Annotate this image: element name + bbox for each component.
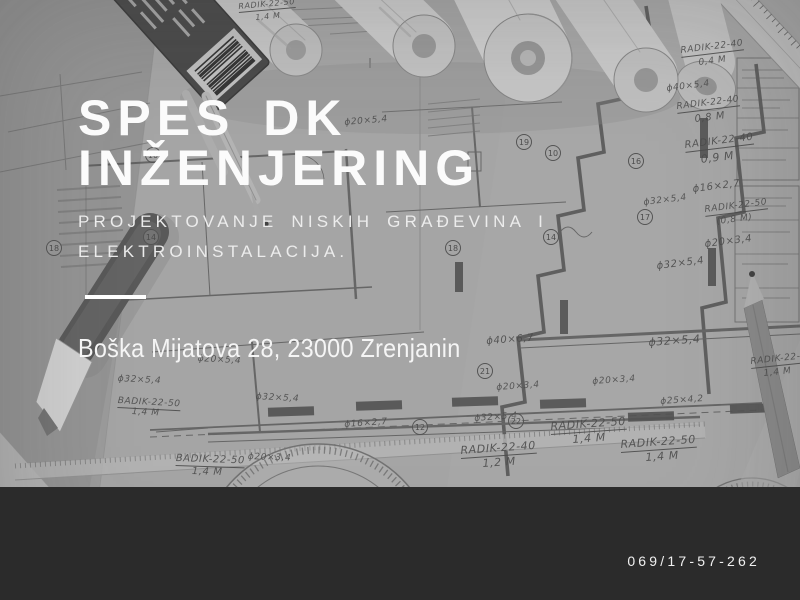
phone-number: 069/17-57-262 <box>627 553 760 569</box>
divider-line <box>85 295 146 299</box>
tagline-line2: ELEKTROINSTALACIJA. <box>78 237 547 267</box>
banner: RADIK-22-501,4 MRADIK-22-400,4 Mϕ40×5,4R… <box>0 0 800 600</box>
company-name-line1: SPES DK <box>78 93 480 143</box>
company-name-line2: INŽENJERING <box>78 143 480 193</box>
company-tagline: PROJEKTOVANJE NISKIH GRAĐEVINA I ELEKTRO… <box>78 207 547 267</box>
footer-bar: 069/17-57-262 <box>0 487 800 600</box>
company-name: SPES DK INŽENJERING <box>78 93 480 193</box>
tagline-line1: PROJEKTOVANJE NISKIH GRAĐEVINA I <box>78 207 547 237</box>
address-text: Boška Mijatova 28, 23000 Zrenjanin <box>78 333 461 364</box>
